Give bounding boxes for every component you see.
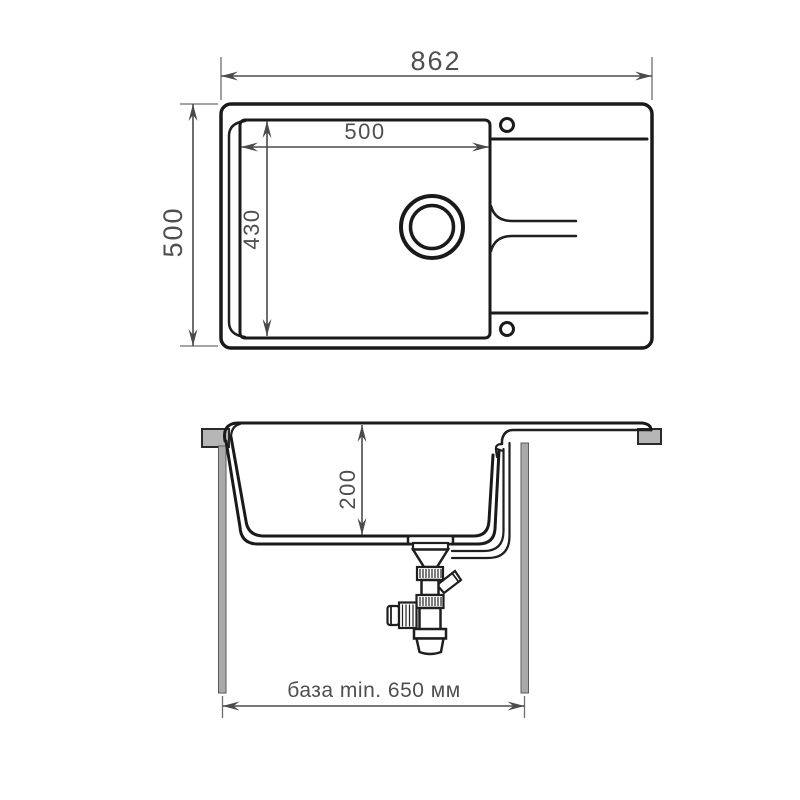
rim-left-inner-curl — [231, 424, 240, 438]
waste-outlet-stub — [388, 606, 400, 625]
dimension-label-overall-depth: 500 — [158, 206, 188, 257]
dimension-label-bowl-width: 500 — [344, 119, 385, 144]
dimension-bowl-width: 500 — [241, 119, 489, 147]
drawing-canvas: 862 500 500 430 — [0, 0, 800, 800]
drain-hole-inner-ring — [411, 206, 454, 249]
dimension-label-bowl-depth: 430 — [239, 208, 264, 249]
sink-outline-top — [221, 104, 652, 348]
dimension-label-base-min: база min. 650 мм — [287, 679, 460, 702]
dimension-overall-width: 862 — [221, 46, 652, 100]
drainboard-groove-bottom — [491, 236, 576, 251]
trap-cup — [417, 639, 444, 655]
tap-hole-bottom — [501, 323, 514, 336]
sink-rim-top-line — [225, 423, 652, 441]
sink-technical-drawing: 862 500 500 430 — [0, 0, 800, 800]
dimension-base-width: база min. 650 мм — [223, 679, 525, 718]
cabinet-wall-right — [521, 443, 529, 693]
tap-hole-top — [501, 119, 514, 132]
dimension-bowl-height: 200 — [335, 425, 362, 535]
top-view — [221, 104, 652, 348]
trap-pipe — [422, 580, 439, 595]
trap-body — [420, 608, 441, 630]
waste-outlet-nut — [399, 603, 417, 629]
siphon-assembly — [388, 536, 462, 654]
sink-rim-inner-line — [502, 430, 650, 444]
dimension-label-overall-width: 862 — [410, 46, 461, 76]
drain-hole — [401, 196, 463, 258]
drainboard-groove-top — [491, 206, 576, 221]
trap-shoulder — [414, 629, 446, 639]
coupling-nut-upper — [417, 567, 443, 580]
dimension-bowl-depth: 430 — [239, 121, 267, 336]
side-view — [202, 423, 661, 693]
dimension-label-bowl-height: 200 — [335, 468, 360, 509]
cabinet-wall-left — [219, 446, 227, 693]
dimension-overall-depth: 500 — [158, 104, 218, 346]
drain-funnel — [413, 550, 448, 568]
